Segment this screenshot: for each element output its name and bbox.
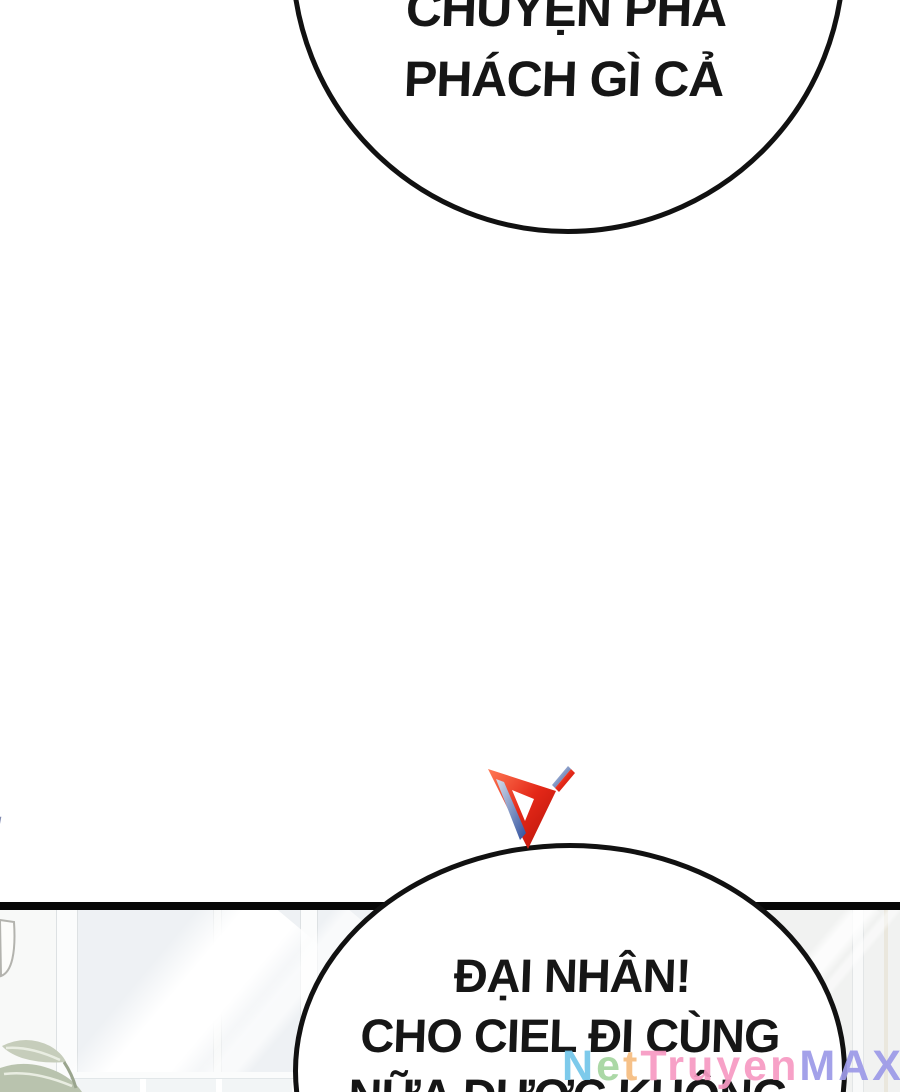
speech-line: PHÁCH GÌ CẢ [313, 44, 815, 114]
watermark-letter: n [770, 1042, 799, 1090]
watermark-letter: u [687, 1042, 716, 1090]
watermark-letter: e [596, 1042, 623, 1090]
watermark-letter: y [716, 1042, 743, 1090]
watermark-letter: N [562, 1042, 596, 1090]
watermark-letter: e [743, 1042, 770, 1090]
speech-line: CHUYỆN PHÁ [315, 0, 817, 44]
watermark-letter: t [623, 1042, 640, 1090]
wall-lamp-icon [0, 918, 22, 980]
plant-leaves-icon [0, 1032, 120, 1092]
vlogtruyen-logo-icon [468, 757, 576, 853]
speech-line: ĐẠI NHÂN! [296, 946, 848, 1006]
speech-text-top: CHUYỆN PHÁPHÁCH GÌ CẢ [313, 0, 818, 114]
nettruyen-watermark: NetTruyenMAX [562, 1042, 900, 1091]
watermark-letter: A [838, 1042, 872, 1090]
watermark-letter: T [640, 1042, 667, 1090]
watermark-letter: r [667, 1042, 687, 1090]
watermark-letter: X [872, 1042, 900, 1090]
comic-page: CHUYỆN PHÁPHÁCH GÌ CẢ ĐẠI NHÂN!CHO CIEL … [0, 0, 900, 1092]
watermark-letter: M [799, 1042, 838, 1090]
